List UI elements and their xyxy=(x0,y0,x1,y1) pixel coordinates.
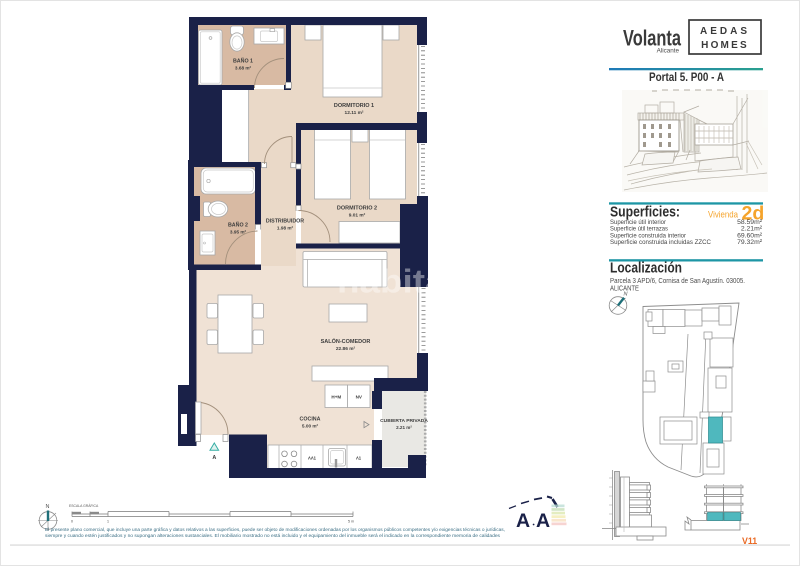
svg-text:3.68 m²: 3.68 m² xyxy=(235,66,252,71)
svg-text:12.11 m²: 12.11 m² xyxy=(345,110,364,116)
svg-text:Superficie construida incluida: Superficie construida incluidas ZZCC xyxy=(610,239,711,246)
svg-text:Λ1: Λ1 xyxy=(356,456,362,461)
svg-text:DORMITORIO 2: DORMITORIO 2 xyxy=(337,206,377,212)
svg-text:5.00 m²: 5.00 m² xyxy=(302,424,319,429)
svg-text:1.98 m²: 1.98 m² xyxy=(277,226,294,231)
svg-text:NV: NV xyxy=(356,395,363,400)
svg-text:ESCALA GRÁFICA: ESCALA GRÁFICA xyxy=(69,504,99,508)
svg-text:2.21 m²: 2.21 m² xyxy=(396,425,412,430)
svg-text:SALÓN-COMEDOR: SALÓN-COMEDOR xyxy=(321,337,371,345)
svg-text:COCINA: COCINA xyxy=(300,417,321,423)
svg-text:3.95 m²: 3.95 m² xyxy=(230,230,247,235)
svg-text:5 m: 5 m xyxy=(348,520,354,524)
svg-text:HOMES: HOMES xyxy=(701,40,749,51)
svg-text:A: A xyxy=(536,510,550,532)
svg-text:H+M: H+M xyxy=(331,395,341,400)
svg-text:N: N xyxy=(624,292,628,298)
svg-text:9.01 m²: 9.01 m² xyxy=(349,213,366,219)
svg-text:ΛΛ1: ΛΛ1 xyxy=(308,456,317,461)
svg-text:El presente plano comercial, q: El presente plano comercial, que incluye… xyxy=(45,527,505,532)
svg-text:1: 1 xyxy=(107,520,109,524)
svg-text:A: A xyxy=(212,455,216,461)
svg-text:N: N xyxy=(46,504,50,510)
svg-text:siempre y cuando estén justifi: siempre y cuando estén justificados y no… xyxy=(45,533,501,538)
svg-text:CUBIERTA PRIVADA: CUBIERTA PRIVADA xyxy=(380,418,428,424)
svg-text:A: A xyxy=(516,510,530,532)
svg-text:DORMITORIO 1: DORMITORIO 1 xyxy=(334,103,374,109)
svg-text:BAÑO 1: BAÑO 1 xyxy=(233,58,253,65)
svg-text:Localización: Localización xyxy=(610,260,682,277)
svg-text:DISTRIBUIDOR: DISTRIBUIDOR xyxy=(266,219,304,225)
svg-text:Portal 5. P00 - A: Portal 5. P00 - A xyxy=(649,70,724,84)
svg-text:V11: V11 xyxy=(742,536,757,546)
svg-text:BAÑO 2: BAÑO 2 xyxy=(228,222,248,229)
svg-text:habitaclia: habitaclia xyxy=(337,263,508,300)
svg-text:79.32m²: 79.32m² xyxy=(737,239,763,246)
svg-text:AEDAS: AEDAS xyxy=(700,26,750,37)
svg-text:Vivienda: Vivienda xyxy=(708,210,739,221)
svg-text:Alicante: Alicante xyxy=(657,48,680,55)
svg-text:0: 0 xyxy=(71,520,73,524)
svg-text:22.86 m²: 22.86 m² xyxy=(336,346,356,352)
